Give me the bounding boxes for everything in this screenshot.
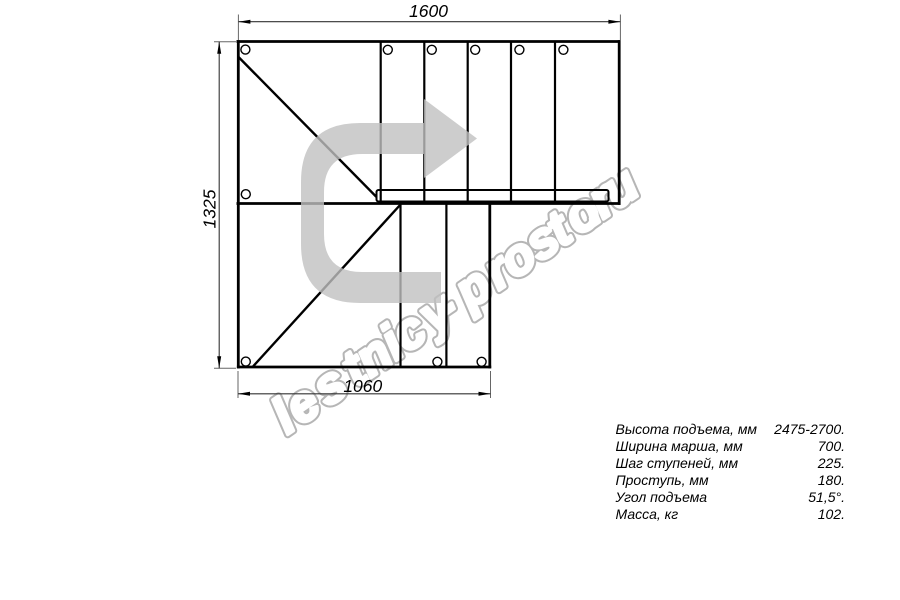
svg-text:Высота подъема, мм: Высота подъема, мм: [616, 421, 758, 437]
svg-text:Шаг ступеней, мм: Шаг ступеней, мм: [616, 455, 739, 471]
svg-text:1600: 1600: [409, 1, 448, 21]
svg-text:700.: 700.: [818, 438, 845, 454]
svg-text:Угол подъема: Угол подъема: [615, 489, 708, 505]
svg-text:51,5°.: 51,5°.: [808, 489, 845, 505]
svg-text:Проступь, мм: Проступь, мм: [616, 472, 710, 488]
svg-text:Масса, кг: Масса, кг: [616, 506, 679, 522]
svg-text:1060: 1060: [343, 376, 382, 396]
svg-text:225.: 225.: [817, 455, 845, 471]
svg-text:1325: 1325: [200, 189, 220, 228]
svg-text:102.: 102.: [818, 506, 845, 522]
svg-text:180.: 180.: [818, 472, 845, 488]
svg-text:2475-2700.: 2475-2700.: [773, 421, 845, 437]
svg-text:Ширина марша, мм: Ширина марша, мм: [616, 438, 744, 454]
